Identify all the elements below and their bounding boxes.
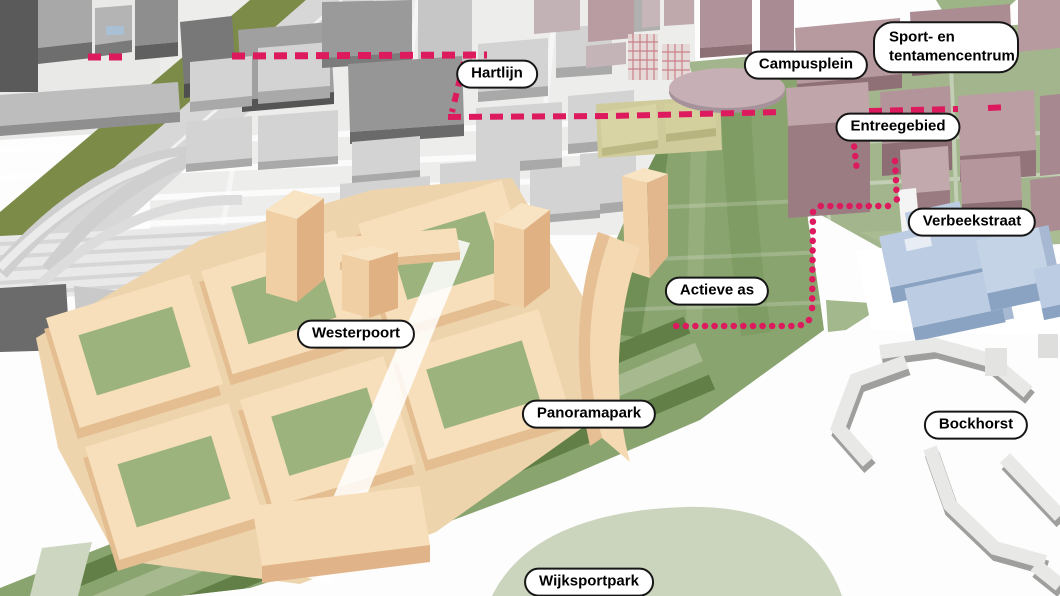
label-hartlijn: Hartlijn	[456, 60, 538, 89]
label-entreegebied: Entreegebied	[835, 113, 960, 142]
westerpoort-mid-block	[342, 246, 398, 318]
label-wijksportpark: Wijksportpark	[524, 568, 654, 596]
label-panoramapark: Panoramapark	[522, 400, 656, 429]
westerpoort-tower-2	[494, 203, 550, 308]
label-actieve-as: Actieve as	[665, 277, 769, 306]
blue-roof-detail	[106, 26, 124, 35]
label-westerpoort: Westerpoort	[297, 320, 415, 349]
label-verbeekstraat: Verbeekstraat	[908, 208, 1036, 237]
map-scene	[0, 0, 1060, 596]
label-campusplein: Campusplein	[744, 51, 868, 80]
label-bockhorst: Bockhorst	[924, 411, 1028, 440]
label-sport-en-tentamencentrum: Sport- en tentamencentrum	[873, 21, 1019, 73]
westerpoort-tower-1	[266, 190, 324, 302]
map-3d-render: Hartlijn Campusplein Sport- en tentamenc…	[0, 0, 1060, 596]
